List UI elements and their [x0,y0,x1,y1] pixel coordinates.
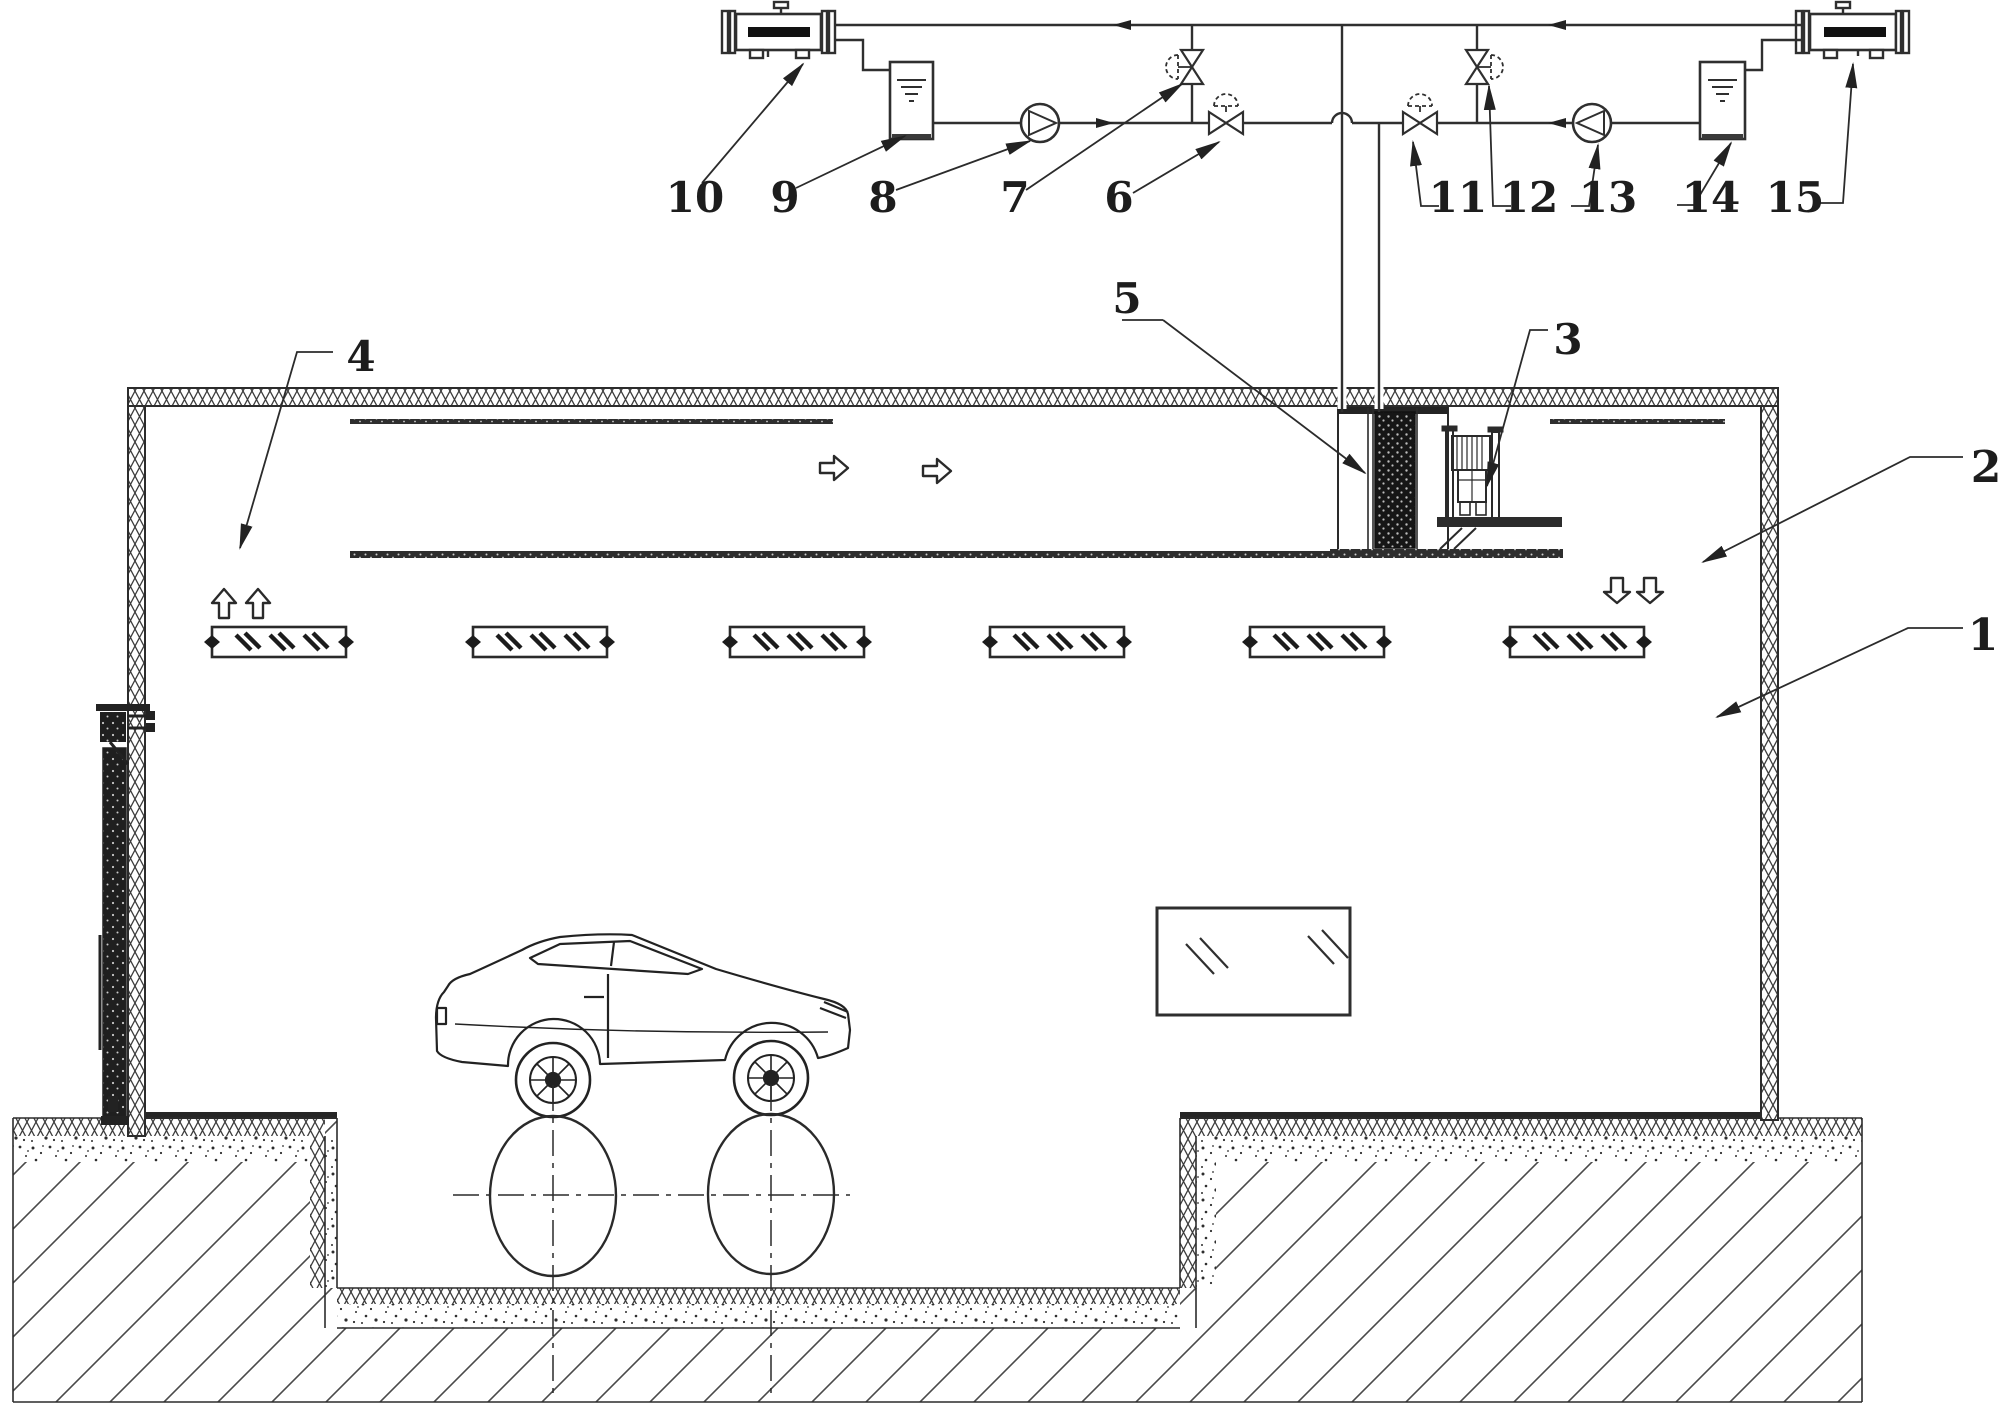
unit-base-plate [1330,549,1563,558]
pit-left-wall [310,1136,325,1288]
car-headlight [820,1002,848,1018]
callout-1: 1 [1968,610,1999,661]
control-valve-6-icon [1209,94,1243,134]
car-door [584,942,614,1058]
patent-figure: 10 9 8 7 6 11 12 13 14 15 5 3 4 2 1 [0,0,2002,1415]
bypass-branch-pipe [1192,25,1477,123]
callout-7: 7 [1000,173,1029,222]
plenum-line [1550,419,1725,424]
pit-left-wall [325,1136,337,1288]
air-handling [204,407,1725,657]
air-duct-ceiling [350,551,1336,558]
floor-mortar-band [1180,1136,1862,1162]
car-glasshouse [530,941,702,974]
callout-8: 8 [868,173,897,222]
callout-3: 3 [1553,315,1582,364]
ceiling-diffusers [204,627,1652,657]
diffuser [1242,627,1392,657]
pipe-flow-arrows [1096,20,1566,128]
observation-window [1157,908,1350,1015]
callout-6: 6 [1104,173,1133,222]
callout-13: 13 [1579,173,1637,222]
airflow-up-arrow-icon [212,589,236,618]
callout-4: 4 [346,332,375,381]
callout-2: 2 [1971,442,2002,493]
leader-1 [1717,628,1963,717]
leader-6 [1133,142,1219,193]
pit-floor-band [337,1288,1180,1304]
chamber-right-wall [1761,406,1778,1120]
flow-arrow-right-icon [1096,118,1114,128]
water-tank-14-icon [1700,62,1745,139]
callout-numbers: 10 9 8 7 6 11 12 13 14 15 5 3 4 2 1 [346,173,2001,661]
flow-arrow-left-icon [1548,118,1566,128]
airflow-right-arrow-icon [923,459,951,483]
diffuser [722,627,872,657]
coil-core [1375,412,1415,548]
pit-floor-band [337,1304,1180,1328]
test-vehicle [436,934,850,1117]
pipe [840,40,890,70]
control-valve-11-icon [1403,94,1437,134]
diffuser [1502,627,1652,657]
floor-structure-band [1180,1118,1862,1136]
callout-15: 15 [1766,173,1824,222]
fan-shelf [1437,517,1562,527]
circulation-fan [1437,426,1562,549]
pit-right-wall [1196,1136,1216,1288]
flow-arrow-left-icon [1113,20,1131,30]
pit-right-wall [1180,1136,1196,1288]
plenum-line [350,419,833,424]
control-valve-7-icon [1166,50,1203,84]
leader-2 [1703,457,1963,562]
control-valve-12-icon [1466,50,1503,84]
test-chamber-shell [128,388,1778,1136]
car-crease [455,1024,828,1032]
heat-exchanger-10-icon [722,2,840,58]
water-tank-9-icon [890,62,933,139]
heat-exchanger-15-icon [1796,2,1909,58]
floor-mortar-band [13,1136,325,1162]
diffuser [465,627,615,657]
diffuser [204,627,354,657]
leader-3 [1487,330,1548,486]
diffuser [982,627,1132,657]
pump-13-icon [1573,104,1611,142]
pump-8-icon [1021,104,1059,142]
car-taillight [437,1008,446,1024]
callout-12: 12 [1500,173,1558,222]
pipe [1745,40,1800,70]
airflow-down-arrow-icon [1604,578,1630,603]
airflow-right-arrow-icon [820,456,848,480]
floor-structure-band [13,1118,325,1136]
access-door-panel [96,704,155,1125]
callout-9: 9 [770,173,799,222]
callout-11: 11 [1429,173,1487,222]
airflow-up-arrow-icon [246,589,270,618]
leader-4 [240,352,333,548]
flow-arrow-left-icon [1548,20,1566,30]
ground-foundation [13,1110,1862,1402]
leader-10 [702,64,803,183]
callout-14: 14 [1682,173,1740,222]
callout-5: 5 [1112,274,1141,323]
airflow-down-arrow-icon [1637,578,1663,603]
callout-10: 10 [666,173,724,222]
chamber-left-wall [128,406,145,1136]
chamber-roof [128,388,1778,406]
